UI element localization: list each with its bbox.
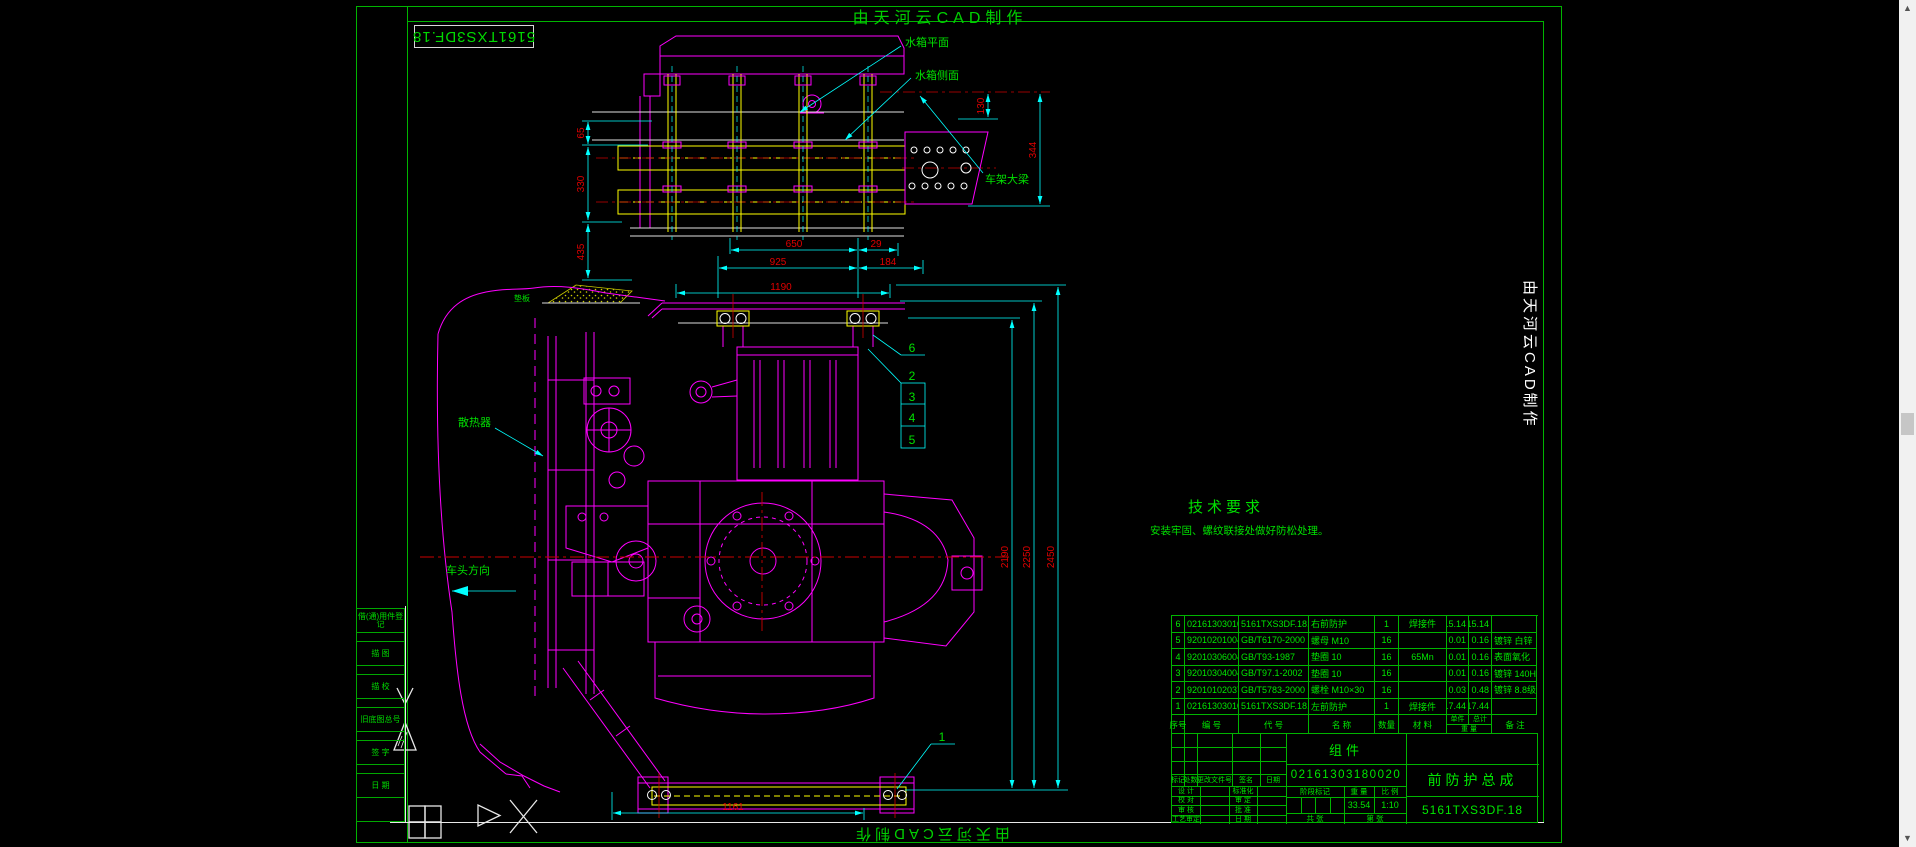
bom-cell: 0.03 — [1447, 682, 1469, 699]
tech-req-title: 技术要求 — [1188, 499, 1264, 516]
bom-cell — [1492, 699, 1537, 716]
bom-cell: 9201010203701 — [1185, 682, 1239, 699]
tb-stage-label: 阶段标记 — [1286, 786, 1344, 797]
bom-cell — [1399, 633, 1447, 650]
corner-code: 5161TXS3DF.18 — [412, 28, 535, 45]
dim-text: 29 — [870, 239, 882, 250]
ground-pad-hatch — [548, 285, 632, 303]
scroll-up-button[interactable]: ▲ — [1899, 0, 1916, 17]
bom-cell: 焊接件 — [1399, 699, 1447, 716]
tb-role: 审 核 — [1172, 805, 1200, 815]
bom-cell: 螺栓 M10×30 — [1309, 682, 1375, 699]
bom-cell: 15.14 — [1469, 616, 1492, 633]
bom-rows: 6021613030101205161TXS3DF.18.2右前防护1焊接件15… — [1171, 615, 1538, 715]
bom-cell: 表面氧化 — [1492, 649, 1537, 666]
bom-cell: 6 — [1172, 616, 1185, 633]
label-radiator-plane: 水箱平面 — [905, 35, 949, 49]
bom-cell: 4 — [1172, 649, 1185, 666]
bom-header-remark: 备 注 — [1492, 715, 1538, 734]
vertical-scrollbar[interactable]: ▲ ▼ — [1899, 0, 1916, 847]
dim-text: 1161 — [722, 802, 744, 813]
bom-cell: GB/T6170-2000 — [1239, 633, 1309, 650]
bom-cell: 焊接件 — [1399, 616, 1447, 633]
title-block: 标记 处数 更改文件号 签名 日期 设 计 校 对 审 核 工艺审定 标准化 审… — [1171, 733, 1538, 823]
tb-mark: 标记 — [1172, 774, 1184, 786]
bom-cell — [1399, 666, 1447, 683]
tb-sheets-total: 共 张 — [1286, 813, 1344, 824]
balloon-6: 6 — [909, 341, 916, 355]
tb-role: 标准化 — [1229, 786, 1257, 796]
bom-cell: 9201030600401 — [1185, 649, 1239, 666]
balloon-4: 4 — [909, 411, 916, 425]
margin-symbols — [394, 688, 537, 838]
bom-cell: 0.16 — [1469, 666, 1492, 683]
bom-header: 序号 编 号 代 号 名 称 数量 材 料 单件 总计 重 量 备 注 — [1171, 715, 1538, 734]
bom-cell: 17.44 — [1447, 699, 1469, 716]
strip-item: 描 图 — [356, 641, 405, 665]
bom-cell: GB/T97.1-2002 — [1239, 666, 1309, 683]
tb-role: 校 对 — [1172, 796, 1200, 806]
bom-cell: GB/T5783-2000 — [1239, 682, 1309, 699]
bom-cell: 镀锌 140HV — [1492, 666, 1537, 683]
tb-sheet-no: 第 张 — [1344, 813, 1406, 824]
bom-header-name: 名 称 — [1309, 715, 1375, 734]
bom-cell: 16 — [1375, 649, 1399, 666]
bom-cell: 螺母 M10 — [1309, 633, 1375, 650]
bom-cell: 1 — [1375, 699, 1399, 716]
bom-cell: 2 — [1172, 682, 1185, 699]
margin-strip: 借(通)用件登记 描 图 描 校 旧底图总号 签 字 日 期 — [356, 608, 405, 822]
tb-role: 设 计 — [1172, 786, 1200, 796]
bom-cell: 0.01 — [1447, 666, 1469, 683]
label-frame-rail: 车架大梁 — [985, 172, 1029, 186]
bom-cell: 右前防护 — [1309, 616, 1375, 633]
corner-code-box: 5161TXS3DF.18 — [414, 25, 534, 48]
strip-item: 旧底图总号 — [356, 707, 405, 731]
tb-weight-value: 33.54 — [1344, 797, 1374, 813]
tb-role: 审 定 — [1229, 796, 1257, 806]
bom-cell: 9201020100401 — [1185, 633, 1239, 650]
dim-text: 435 — [576, 243, 587, 260]
bom-cell: 1 — [1172, 699, 1185, 716]
bom-cell — [1399, 682, 1447, 699]
bom-header-seq: 序号 — [1172, 715, 1185, 734]
tb-date: 日期 — [1260, 774, 1286, 786]
bom-cell: 5161TXS3DF.18.2 — [1239, 616, 1309, 633]
label-pad: 垫板 — [514, 293, 530, 303]
bom-cell: 17.44 — [1469, 699, 1492, 716]
bom-cell: 0.16 — [1469, 649, 1492, 666]
dim-text: 925 — [770, 257, 787, 268]
bom-header-qty: 数量 — [1375, 715, 1399, 734]
tb-count: 处数 — [1184, 774, 1197, 786]
bom-cell: 垫圈 10 — [1309, 666, 1375, 683]
tb-doc: 更改文件号 — [1197, 774, 1232, 786]
plot-x-mark — [510, 800, 537, 833]
strip-item: 借(通)用件登记 — [356, 608, 405, 632]
scrollbar-thumb[interactable] — [1901, 413, 1914, 435]
bom-cell: 镀锌 8.8级 — [1492, 682, 1537, 699]
label-radiator-side: 水箱侧面 — [915, 68, 959, 82]
tb-scale-label: 比 例 — [1374, 786, 1406, 797]
bom-cell: 02161303010120 — [1185, 616, 1239, 633]
dim-text: 2190 — [1000, 545, 1011, 568]
t-role: 批 准 — [1229, 805, 1257, 815]
dim-text: 65 — [576, 127, 587, 139]
maker-banner-bottom: 由天河云CAD制作 — [831, 824, 1031, 845]
tb-product-name: 前防护总成 — [1406, 764, 1539, 796]
bom-cell: 3 — [1172, 666, 1185, 683]
strip-item: 日 期 — [356, 773, 405, 797]
bom-cell: 0.01 — [1447, 649, 1469, 666]
dim-text: 330 — [576, 175, 587, 192]
bom-cell: 16 — [1375, 666, 1399, 683]
bom-cell: 0.48 — [1469, 682, 1492, 699]
balloon-3: 3 — [909, 390, 916, 404]
tb-scale-value: 1:10 — [1374, 797, 1406, 813]
balloon-5: 5 — [909, 433, 916, 447]
bom-cell: 镀锌 白锌 — [1492, 633, 1537, 650]
dim-text: 344 — [1028, 141, 1039, 158]
dim-text: 184 — [880, 257, 897, 268]
bom-cell: 5 — [1172, 633, 1185, 650]
dim-text: 2450 — [1046, 545, 1057, 568]
bom-cell — [1492, 616, 1537, 633]
bom-cell: 0.01 — [1447, 633, 1469, 650]
drawing-canvas: 65 330 435 130 344 650 29 925 184 1190 2… — [0, 0, 1916, 847]
tb-type: 组件 — [1286, 734, 1406, 764]
scroll-down-button[interactable]: ▼ — [1899, 830, 1916, 847]
maker-banner-top: 由天河云CAD制作 — [840, 4, 1040, 28]
dim-text: 2250 — [1022, 545, 1033, 568]
tb-product-code: 5161TXS3DF.18 — [1406, 796, 1539, 824]
balloon-1: 1 — [939, 730, 946, 744]
bom-table: 6021613030101205161TXS3DF.18.2右前防护1焊接件15… — [1171, 615, 1538, 734]
bom-cell: 16 — [1375, 633, 1399, 650]
dim-text: 130 — [976, 97, 987, 114]
tb-role: 工艺审定 — [1172, 815, 1200, 825]
bom-cell: 0.16 — [1469, 633, 1492, 650]
bom-cell: GB/T93-1987 — [1239, 649, 1309, 666]
bottom-guard-rail — [563, 661, 914, 818]
bom-header-total: 总计 — [1469, 715, 1492, 725]
tb-drawing-no: 02161303180020 — [1286, 764, 1406, 786]
main-view — [420, 287, 1010, 818]
bom-cell: 5161TXS3DF.18.1 — [1239, 699, 1309, 716]
bom-header-code: 代 号 — [1239, 715, 1309, 734]
strip-item: 描 校 — [356, 674, 405, 698]
dim-text: 1190 — [770, 282, 792, 293]
bom-cell: 左前防护 — [1309, 699, 1375, 716]
balloon-2: 2 — [909, 369, 916, 383]
bom-cell: 15.14 — [1447, 616, 1469, 633]
tb-weight-label: 重 量 — [1344, 786, 1374, 797]
bom-cell: 9201030400401 — [1185, 666, 1239, 683]
tb-sign: 签名 — [1232, 774, 1260, 786]
strip-item: 签 字 — [356, 740, 405, 764]
bom-cell: 16 — [1375, 682, 1399, 699]
label-direction: 车头方向 — [446, 563, 490, 577]
label-radiator: 散热器 — [458, 415, 491, 429]
bom-header-num: 编 号 — [1185, 715, 1239, 734]
tech-req-body: 安装牢固、螺纹联接处做好防松处理。 — [1150, 524, 1329, 537]
bom-header-unit: 单件 — [1447, 715, 1469, 725]
tb-role: 日 期 — [1229, 815, 1257, 825]
top-guard-rail — [648, 294, 905, 347]
bom-cell: 65Mn — [1399, 649, 1447, 666]
dim-text: 650 — [786, 239, 803, 250]
bom-cell: 1 — [1375, 616, 1399, 633]
bom-cell: 垫圈 10 — [1309, 649, 1375, 666]
maker-banner-right: 由天河云CAD制作 — [1521, 280, 1541, 490]
bom-cell: 02161303010110 — [1185, 699, 1239, 716]
bom-header-mat: 材 料 — [1399, 715, 1447, 734]
cad-viewer: 65 330 435 130 344 650 29 925 184 1190 2… — [0, 0, 1916, 847]
top-view — [542, 36, 1050, 303]
